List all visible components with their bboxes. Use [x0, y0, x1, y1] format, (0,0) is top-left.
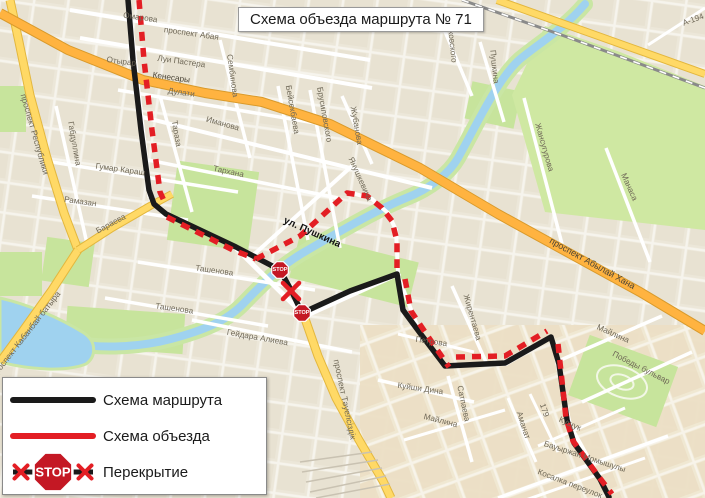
- park: [0, 252, 42, 296]
- map-title-text: Схема объезда маршрута № 71: [250, 11, 472, 28]
- stop-sign-icon-octagon-text: STOP: [35, 465, 70, 480]
- legend-label-closure: Перекрытие: [103, 464, 188, 481]
- legend-row-closure: STOP Перекрытие: [3, 454, 266, 490]
- detour-line-swatch: [3, 431, 103, 441]
- stop-sign-icon: STOP: [3, 449, 103, 495]
- route-line-swatch: [3, 395, 103, 405]
- legend-row-route: Схема маршрута: [3, 382, 266, 418]
- map-screenshot: STOPSTOP Омаровапроспект АбаяОтырарЛуи П…: [0, 0, 705, 498]
- stop-sign-marker-text: STOP: [295, 310, 310, 316]
- map-title: Схема объезда маршрута № 71: [238, 7, 484, 32]
- legend-label-detour: Схема объезда: [103, 428, 210, 445]
- park: [0, 86, 26, 132]
- legend-label-route: Схема маршрута: [103, 392, 222, 409]
- legend-panel: Схема маршрута Схема объезда STOP Перекр…: [2, 377, 267, 495]
- stop-sign-marker-text: STOP: [273, 267, 288, 273]
